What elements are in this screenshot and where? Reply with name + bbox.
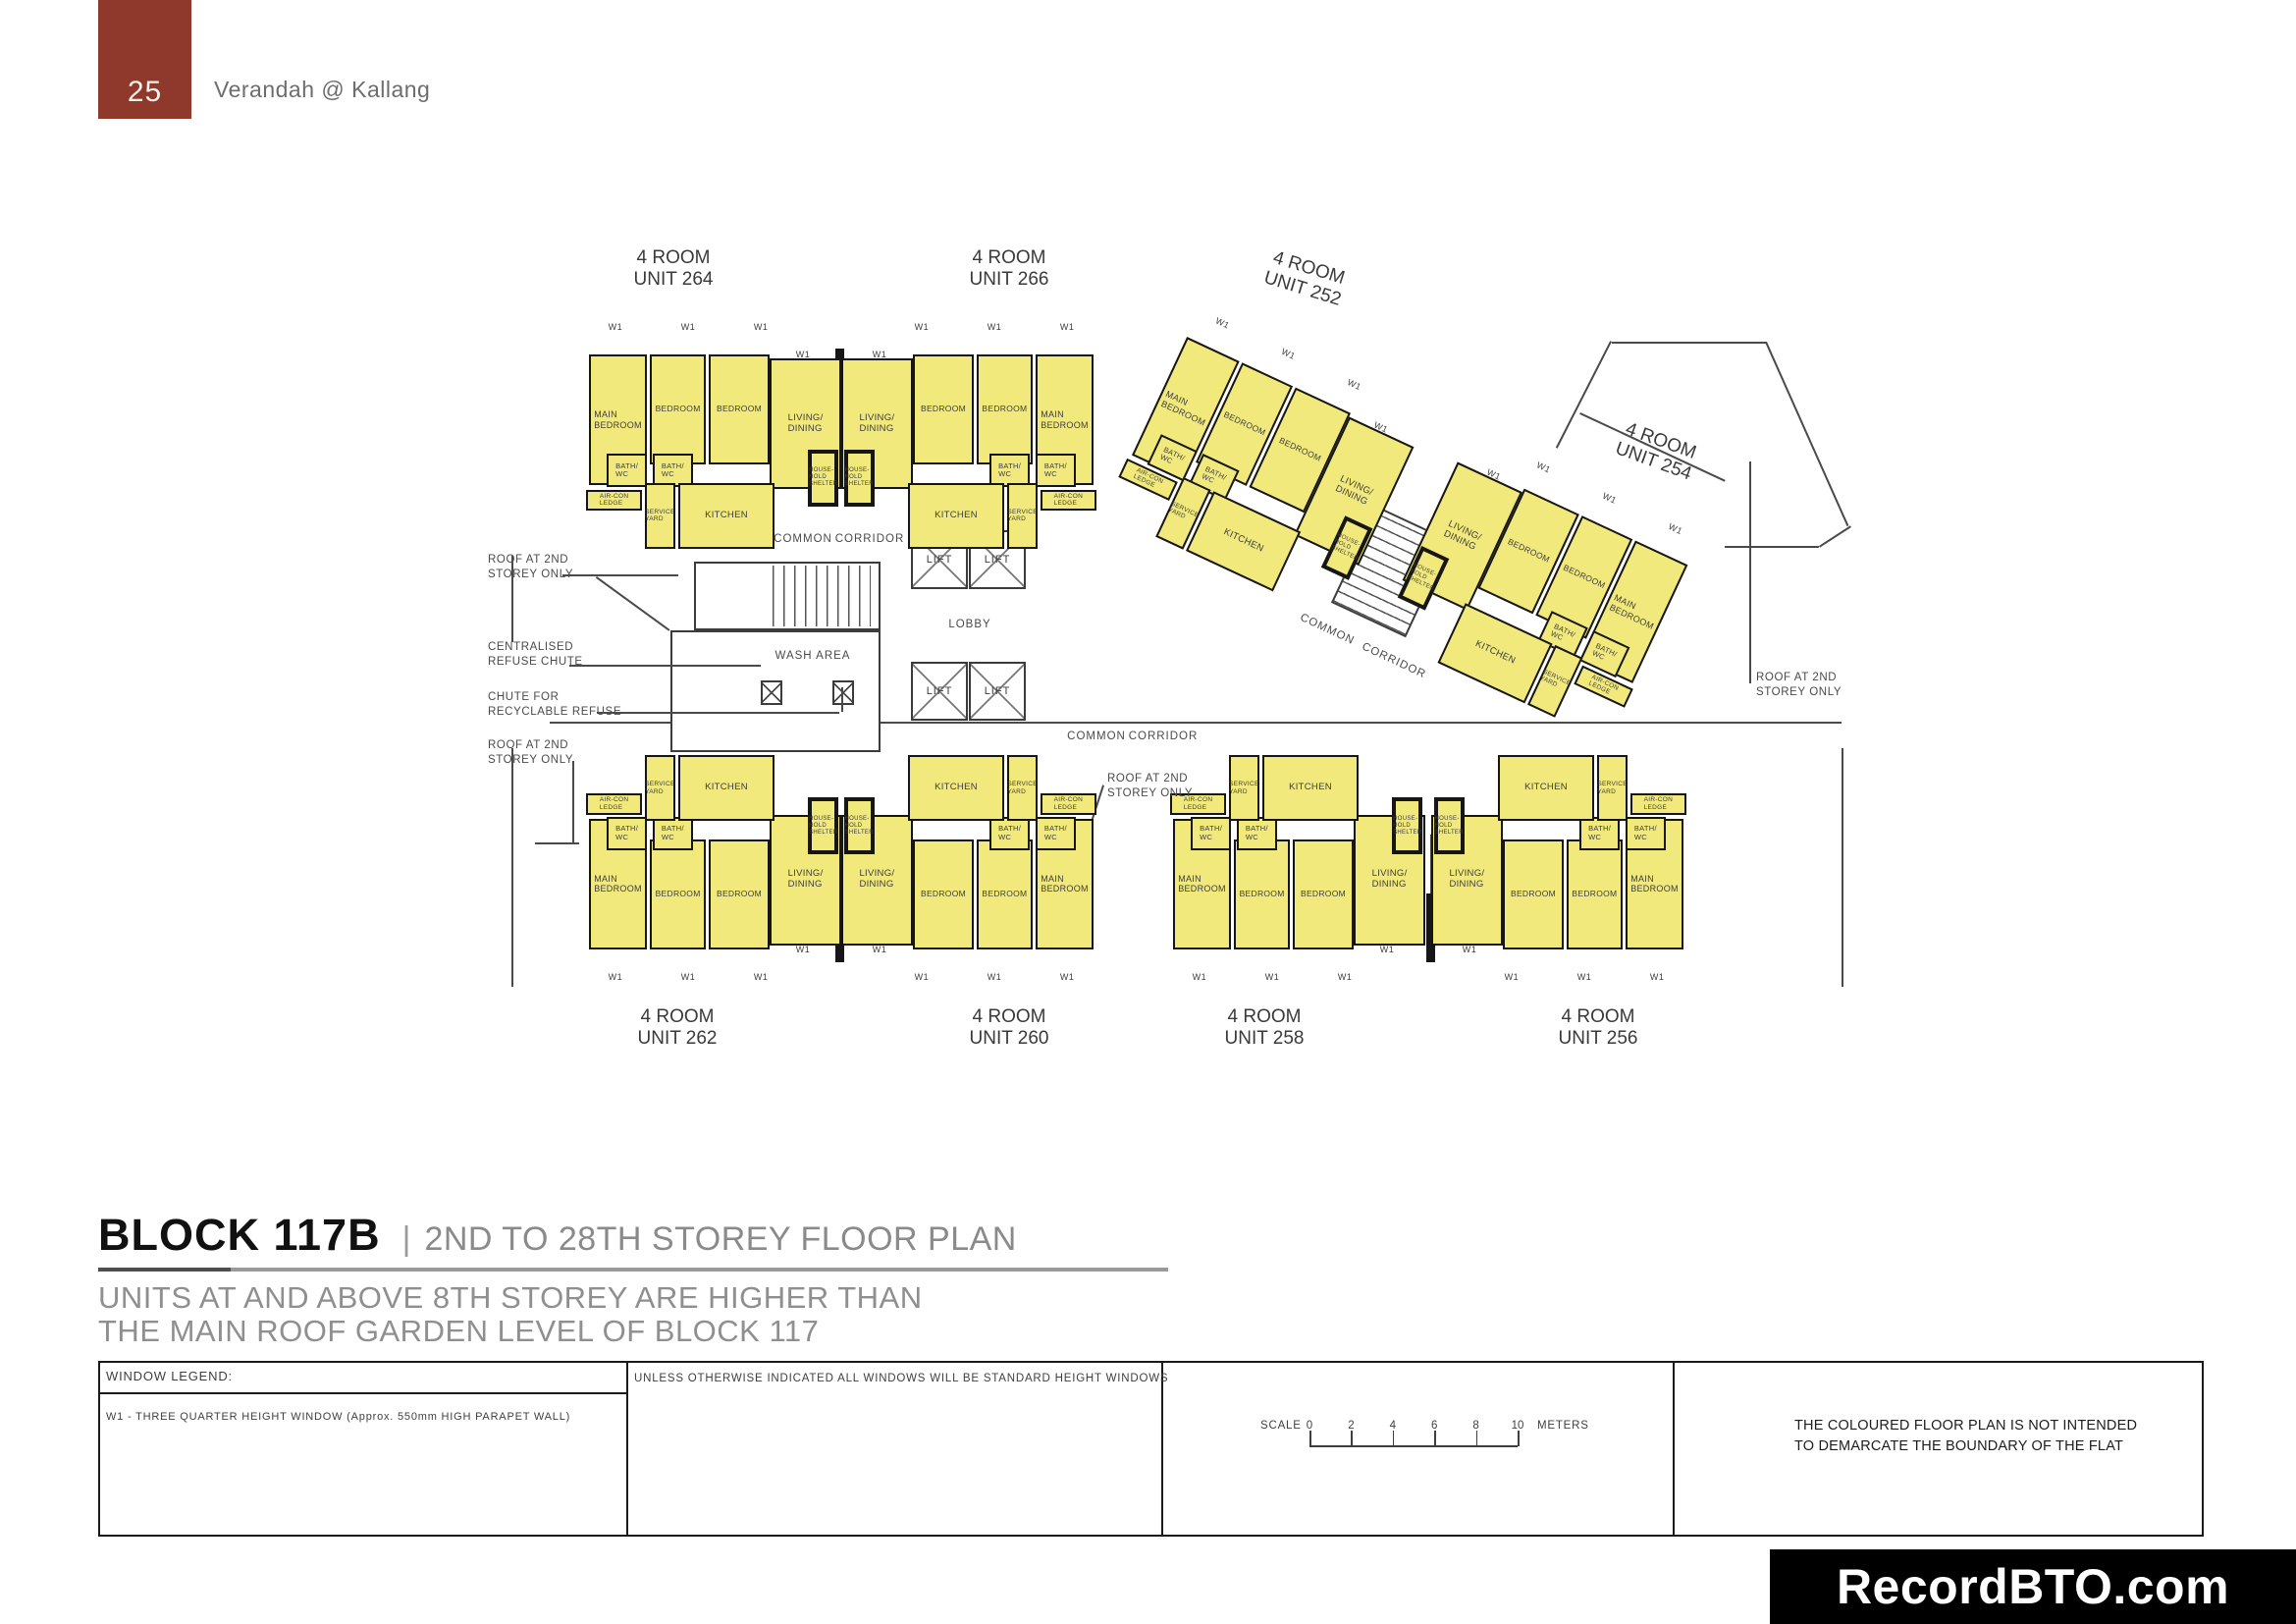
room-kitchen: KITCHEN — [908, 483, 1005, 549]
unit-254: MAIN BEDROOMBEDROOMBEDROOMLIVING/ DINING… — [1375, 447, 1696, 746]
window-marker-w1: W1 — [988, 322, 1002, 332]
disclaimer-line1: THE COLOURED FLOOR PLAN IS NOT INTENDED — [1794, 1416, 2137, 1436]
standard-windows-note: UNLESS OTHERWISE INDICATED ALL WINDOWS W… — [634, 1373, 1168, 1384]
annotation-line: ROOF AT 2ND — [1107, 772, 1193, 786]
annotation-line: STOREY ONLY — [488, 568, 573, 582]
annotation-line: ROOF AT 2ND — [488, 738, 573, 753]
block-title: BLOCK 117B — [98, 1210, 381, 1261]
scale-tick-mark — [1309, 1431, 1311, 1446]
plan-label-corridor: CORRIDOR — [1129, 731, 1199, 742]
w1-definition: W1 - THREE QUARTER HEIGHT WINDOW (Approx… — [106, 1411, 570, 1423]
room-service-yard: SERVICE YARD — [645, 483, 675, 549]
unit-label-line: UNIT 258 — [1205, 1028, 1323, 1050]
annotation-line: RECYCLABLE REFUSE — [488, 705, 621, 720]
scale-tick-mark — [1434, 1431, 1436, 1446]
legend-border-top — [98, 1361, 2204, 1363]
room-bath-wc-1: BATH/ WC — [607, 454, 648, 487]
room-bath-wc-1: BATH/ WC — [1191, 817, 1232, 850]
lift-box: LIFT — [911, 662, 968, 721]
plan-line — [511, 748, 513, 987]
annotation-line: STOREY ONLY — [1756, 685, 1842, 700]
scale-unit: METERS — [1537, 1420, 1589, 1432]
room-household-shelter: HOUSE- HOLD SHELTER — [844, 797, 875, 854]
unit-label-line: 4 ROOM — [618, 1006, 736, 1028]
plan-line — [1612, 342, 1767, 344]
unit-label-258: 4 ROOMUNIT 258 — [1205, 1006, 1323, 1050]
plan-line — [1725, 546, 1819, 548]
roof-2nd-storey-1: ROOF AT 2NDSTOREY ONLY — [488, 553, 573, 582]
plan-line — [841, 687, 843, 712]
scale-label: SCALE — [1260, 1420, 1302, 1432]
window-marker-w1: W1 — [609, 972, 623, 982]
refuse-chute-icon — [832, 680, 854, 705]
roof-2nd-storey-3: ROOF AT 2NDSTOREY ONLY — [1107, 772, 1193, 801]
window-marker-w1: W1 — [1380, 945, 1395, 954]
plan-line — [1842, 748, 1843, 987]
unit-label-line: UNIT 260 — [950, 1028, 1068, 1050]
window-marker-w1: W1 — [1505, 972, 1520, 982]
legend-divider-3 — [1673, 1361, 1675, 1537]
unit-label-line: UNIT 256 — [1539, 1028, 1657, 1050]
annotation-line: ROOF AT 2ND — [1756, 671, 1842, 685]
room-bedroom-1: BEDROOM — [650, 839, 706, 949]
scale-tick-mark — [1351, 1431, 1353, 1446]
unit-label-256: 4 ROOMUNIT 256 — [1539, 1006, 1657, 1050]
plan-label-lobby: LOBBY — [948, 619, 990, 630]
room-aircon-ledge: AIR-CON LEDGE — [1041, 793, 1096, 815]
room-bedroom-2: BEDROOM — [709, 354, 770, 464]
annotation-line: STOREY ONLY — [488, 753, 573, 768]
room-bedroom-1: BEDROOM — [977, 839, 1033, 949]
plan-line — [569, 665, 761, 667]
legend-divider-1 — [626, 1361, 628, 1537]
window-marker-w1: W1 — [754, 322, 769, 332]
staircase-icon — [773, 566, 871, 626]
room-bath-wc-2: BATH/ WC — [1237, 817, 1278, 850]
scale-bar-line — [1309, 1445, 1518, 1447]
room-aircon-ledge: AIR-CON LEDGE — [1630, 793, 1686, 815]
room-aircon-ledge: AIR-CON LEDGE — [586, 793, 642, 815]
room-household-shelter: HOUSE- HOLD SHELTER — [808, 450, 838, 507]
window-marker-w1: W1 — [1338, 972, 1353, 982]
room-aircon-ledge: AIR-CON LEDGE — [1041, 490, 1096, 512]
disclaimer-line2: TO DEMARCATE THE BOUNDARY OF THE FLAT — [1794, 1436, 2137, 1457]
unit-label-line: UNIT 264 — [614, 269, 732, 291]
roof-garden-note-line2: THE MAIN ROOF GARDEN LEVEL OF BLOCK 117 — [98, 1314, 819, 1349]
watermark-text: RecordBTO.com — [1837, 1558, 2229, 1615]
window-marker-w1: W1 — [988, 972, 1002, 982]
legend-border-bottom — [98, 1535, 2204, 1537]
window-marker-w1: W1 — [1346, 377, 1362, 392]
unit-label-line: 4 ROOM — [950, 247, 1068, 269]
room-bedroom-1: BEDROOM — [977, 354, 1033, 464]
plan-label-common: COMMON — [1067, 731, 1126, 742]
scale-tick-mark — [1476, 1431, 1478, 1446]
room-bedroom-2: BEDROOM — [1503, 839, 1564, 949]
room-service-yard: SERVICE YARD — [645, 755, 675, 821]
window-marker-w1: W1 — [609, 322, 623, 332]
window-legend-header-divider — [98, 1392, 628, 1394]
floor-plan-page: 25 Verandah @ Kallang LIFTLIFTLIFTLIFTMA… — [0, 0, 2296, 1624]
window-marker-w1: W1 — [754, 972, 769, 982]
roof-garden-note-line1: UNITS AT AND ABOVE 8TH STOREY ARE HIGHER… — [98, 1280, 923, 1316]
window-marker-w1: W1 — [1060, 322, 1075, 332]
window-marker-w1: W1 — [1265, 972, 1280, 982]
plan-line — [562, 574, 678, 576]
room-bath-wc-1: BATH/ WC — [607, 817, 648, 850]
plan-line — [1749, 461, 1751, 683]
window-marker-w1: W1 — [1535, 460, 1552, 474]
room-kitchen: KITCHEN — [678, 755, 775, 821]
title-row: BLOCK 117B | 2ND TO 28TH STOREY FLOOR PL… — [98, 1210, 1017, 1261]
room-bath-wc-1: BATH/ WC — [1036, 454, 1077, 487]
room-bath-wc-2: BATH/ WC — [1579, 817, 1621, 850]
unit-label-260: 4 ROOMUNIT 260 — [950, 1006, 1068, 1050]
window-marker-w1: W1 — [1577, 972, 1592, 982]
window-marker-w1: W1 — [873, 350, 887, 359]
annotation-line: CHUTE FOR — [488, 690, 621, 705]
room-bedroom-2: BEDROOM — [1293, 839, 1354, 949]
window-marker-w1: W1 — [796, 350, 811, 359]
unit-label-264: 4 ROOMUNIT 264 — [614, 247, 732, 291]
window-marker-w1: W1 — [681, 322, 696, 332]
room-kitchen: KITCHEN — [678, 483, 775, 549]
unit-266: MAIN BEDROOMBEDROOMBEDROOMLIVING/ DINING… — [841, 342, 1096, 553]
room-bath-wc-1: BATH/ WC — [1036, 817, 1077, 850]
window-marker-w1: W1 — [681, 972, 696, 982]
room-bath-wc-2: BATH/ WC — [653, 817, 694, 850]
storey-title: 2ND TO 28TH STOREY FLOOR PLAN — [424, 1220, 1016, 1259]
window-marker-w1: W1 — [796, 945, 811, 954]
room-service-yard: SERVICE YARD — [1007, 755, 1038, 821]
window-marker-w1: W1 — [873, 945, 887, 954]
annotation-line: REFUSE CHUTE — [488, 655, 583, 670]
room-aircon-ledge: AIR-CON LEDGE — [586, 490, 642, 512]
window-marker-w1: W1 — [1601, 491, 1618, 506]
annotation-line: ROOF AT 2ND — [488, 553, 573, 568]
plan-label-corridor: CORRIDOR — [835, 533, 905, 545]
unit-258: MAIN BEDROOMBEDROOMBEDROOMLIVING/ DINING… — [1170, 751, 1425, 962]
scale-tick-mark — [1393, 1431, 1395, 1446]
plan-line — [535, 842, 579, 844]
roof-2nd-storey-2: ROOF AT 2NDSTOREY ONLY — [488, 738, 573, 768]
unit-256: MAIN BEDROOMBEDROOMBEDROOMLIVING/ DINING… — [1431, 751, 1686, 962]
unit-label-line: 4 ROOM — [950, 1006, 1068, 1028]
room-household-shelter: HOUSE- HOLD SHELTER — [1434, 797, 1465, 854]
centralised-chute: CENTRALISEDREFUSE CHUTE — [488, 640, 583, 670]
room-service-yard: SERVICE YARD — [1597, 755, 1628, 821]
room-bedroom-1: BEDROOM — [650, 354, 706, 464]
unit-264: MAIN BEDROOMBEDROOMBEDROOMLIVING/ DINING… — [586, 342, 841, 553]
scale-tick-mark — [1518, 1431, 1520, 1446]
unit-label-line: 4 ROOM — [1205, 1006, 1323, 1028]
unit-label-262: 4 ROOMUNIT 262 — [618, 1006, 736, 1050]
room-bedroom-2: BEDROOM — [709, 839, 770, 949]
coloured-plan-disclaimer: THE COLOURED FLOOR PLAN IS NOT INTENDED … — [1794, 1416, 2137, 1457]
unit-label-252: 4 ROOMUNIT 252 — [1243, 241, 1368, 316]
annotation-line: STOREY ONLY — [1107, 786, 1193, 801]
plan-line — [597, 712, 839, 714]
window-legend-title: WINDOW LEGEND: — [106, 1369, 233, 1383]
roof-2nd-storey-4: ROOF AT 2NDSTOREY ONLY — [1756, 671, 1842, 700]
room-service-yard: SERVICE YARD — [1007, 483, 1038, 549]
unit-label-line: UNIT 266 — [950, 269, 1068, 291]
window-marker-w1: W1 — [1060, 972, 1075, 982]
room-kitchen: KITCHEN — [908, 755, 1005, 821]
legend-border-right — [2202, 1361, 2204, 1537]
legend-border-left — [98, 1361, 100, 1537]
room-service-yard: SERVICE YARD — [1229, 755, 1259, 821]
window-marker-w1: W1 — [1280, 347, 1297, 361]
room-bedroom-1: BEDROOM — [1567, 839, 1623, 949]
room-bedroom-2: BEDROOM — [913, 354, 974, 464]
plan-line — [596, 576, 669, 630]
floor-plan-canvas: LIFTLIFTLIFTLIFTMAIN BEDROOMBEDROOMBEDRO… — [0, 0, 2296, 1208]
room-household-shelter: HOUSE- HOLD SHELTER — [808, 797, 838, 854]
unit-262: MAIN BEDROOMBEDROOMBEDROOMLIVING/ DINING… — [586, 751, 841, 962]
refuse-chute-icon — [761, 680, 782, 705]
plan-line — [1819, 525, 1851, 547]
room-kitchen: KITCHEN — [1262, 755, 1360, 821]
room-kitchen: KITCHEN — [1498, 755, 1595, 821]
room-bedroom-1: BEDROOM — [1234, 839, 1290, 949]
plan-label-common: COMMON — [774, 533, 832, 545]
window-marker-w1: W1 — [1463, 945, 1477, 954]
window-marker-w1: W1 — [1650, 972, 1665, 982]
window-marker-w1: W1 — [1667, 521, 1683, 536]
unit-label-254: 4 ROOMUNIT 254 — [1594, 411, 1720, 492]
room-bath-wc-1: BATH/ WC — [1626, 817, 1667, 850]
title-underline — [98, 1268, 1168, 1272]
recyclable-chute: CHUTE FORRECYCLABLE REFUSE — [488, 690, 621, 720]
room-bath-wc-2: BATH/ WC — [989, 817, 1031, 850]
unit-label-line: 4 ROOM — [614, 247, 732, 269]
window-marker-w1: W1 — [915, 322, 930, 332]
unit-label-266: 4 ROOMUNIT 266 — [950, 247, 1068, 291]
room-bedroom-2: BEDROOM — [913, 839, 974, 949]
window-marker-w1: W1 — [915, 972, 930, 982]
legend-divider-2 — [1161, 1361, 1163, 1537]
lift-box: LIFT — [969, 662, 1026, 721]
annotation-line: CENTRALISED — [488, 640, 583, 655]
room-household-shelter: HOUSE- HOLD SHELTER — [1392, 797, 1422, 854]
unit-260: MAIN BEDROOMBEDROOMBEDROOMLIVING/ DINING… — [841, 751, 1096, 962]
window-marker-w1: W1 — [1193, 972, 1207, 982]
plan-line — [572, 761, 574, 844]
unit-label-line: UNIT 262 — [618, 1028, 736, 1050]
title-divider-bar: | — [402, 1220, 411, 1259]
watermark-banner[interactable]: RecordBTO.com — [1770, 1549, 2296, 1624]
unit-label-line: 4 ROOM — [1539, 1006, 1657, 1028]
plan-label-wash area: WASH AREA — [775, 650, 851, 662]
plan-line — [1766, 342, 1849, 526]
room-household-shelter: HOUSE- HOLD SHELTER — [844, 450, 875, 507]
window-marker-w1: W1 — [1214, 315, 1231, 330]
